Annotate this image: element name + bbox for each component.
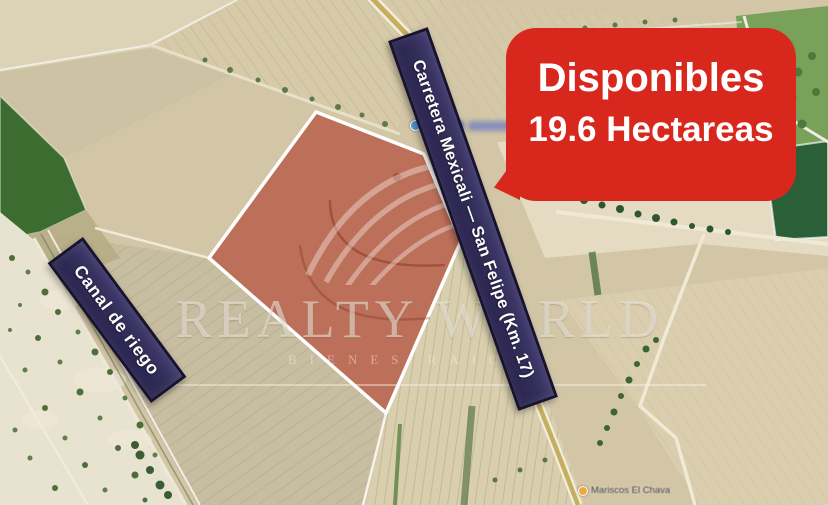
map-pin-orange-icon (578, 486, 588, 496)
badge-title: Disponibles (506, 56, 796, 101)
availability-badge: Disponibles 19.6 Hectareas (506, 28, 796, 201)
land-promo-image: REALTY WORLD BIENES RAICES Mariscos El C… (0, 0, 828, 505)
map-poi-restaurant: Mariscos El Chava (578, 485, 670, 496)
poi-label: Mariscos El Chava (591, 485, 670, 496)
badge-subtitle: 19.6 Hectareas (506, 110, 796, 150)
